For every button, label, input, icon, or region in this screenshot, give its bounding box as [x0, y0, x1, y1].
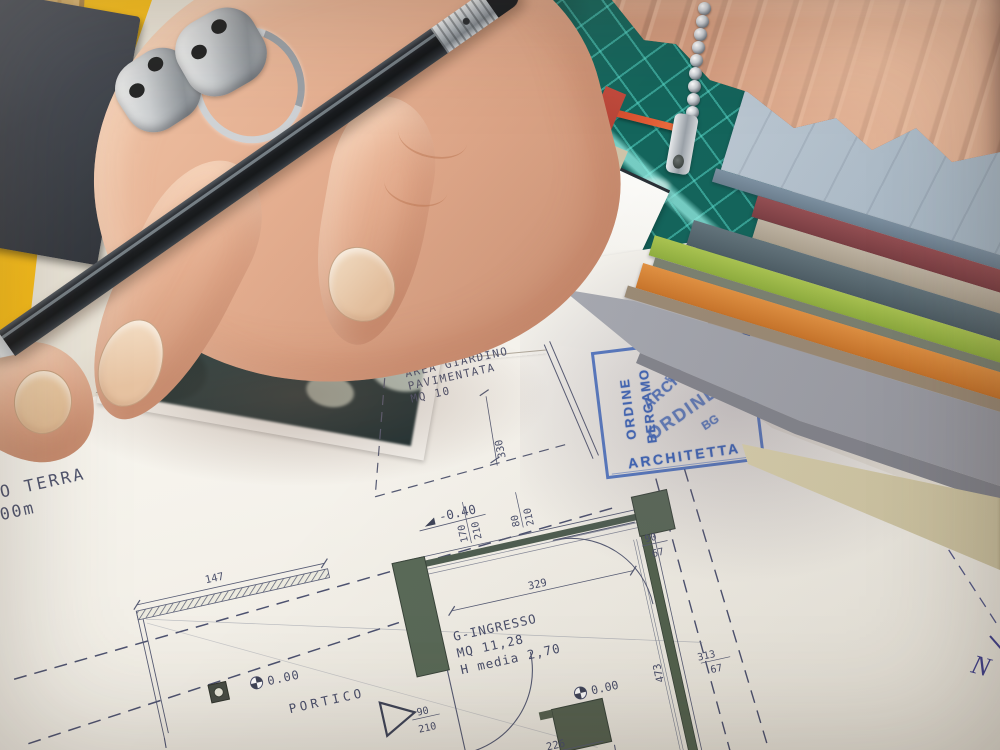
dim-sill2-h: 67: [710, 663, 724, 676]
left-wall-lines: [136, 610, 169, 738]
pencil-clip-rivet: [461, 16, 471, 26]
chain-bead: [687, 93, 700, 106]
dim-win1-w: 170: [456, 523, 471, 543]
ring-hole: [209, 17, 230, 37]
dim-door-h: 210: [418, 721, 438, 736]
dim-226: 226: [545, 738, 566, 750]
dim-147: 147: [204, 571, 225, 587]
clasp-hole: [672, 154, 685, 170]
chain-bead: [692, 41, 705, 54]
ring-hole: [145, 54, 166, 74]
level-portico: 0.00: [266, 667, 301, 688]
architect-desk-photo: ANO TERRA 0,00m AREA GIARDINO PAVIMENTAT…: [0, 0, 1000, 750]
level-garden: -0.40: [437, 501, 477, 524]
ring-hole: [189, 42, 210, 62]
chain-bead: [698, 2, 711, 15]
level-marker-entry: [573, 686, 587, 700]
level-marker-portico: [249, 676, 263, 690]
ring-hole: [126, 80, 147, 100]
chain-bead: [696, 15, 709, 28]
chain-bead: [689, 67, 702, 80]
room-portico: PORTICO: [287, 685, 366, 716]
chain-bead: [694, 28, 707, 41]
hatched-wall: [136, 569, 329, 620]
north-mark: N: [967, 649, 995, 683]
dim-sill2-w: 313: [697, 649, 717, 664]
chain-bead: [688, 80, 701, 93]
level-entry: 0.00: [590, 678, 620, 698]
chain-bead: [690, 54, 703, 67]
dim-win1-h: 210: [470, 520, 485, 540]
floor-quota: 0,00m: [0, 498, 37, 529]
entrance-triangle: [380, 696, 419, 736]
level-marker-garden: [423, 517, 435, 526]
